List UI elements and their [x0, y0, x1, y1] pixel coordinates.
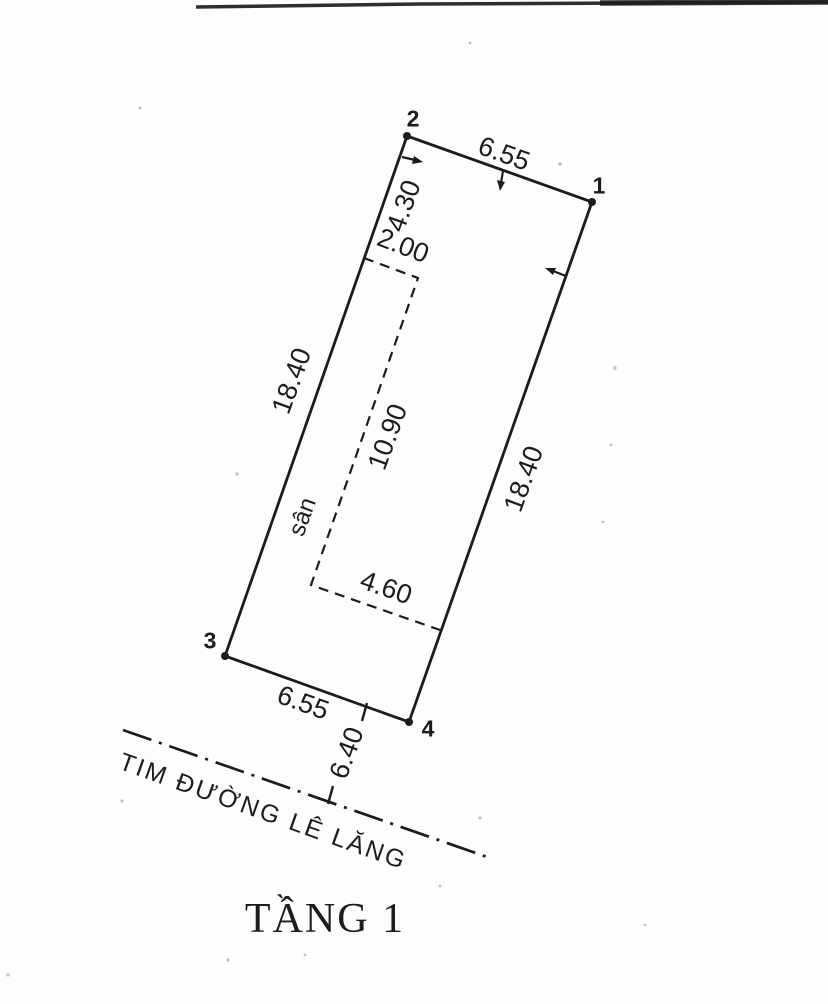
corner-point-1 — [588, 198, 596, 206]
corner-label-1: 1 — [593, 175, 606, 198]
scanned-floor-plan-page: 2 1 3 4 6.55 4.30 2.00 18.40 sân 10.90 1… — [0, 0, 828, 1004]
page-title: TẦNG 1 — [245, 898, 405, 940]
leader-arrow-top-edge — [497, 171, 505, 191]
leader-arrow-left-edge — [402, 156, 423, 164]
page-edge-artifact-thick — [600, 2, 828, 3]
corner-point-3 — [221, 652, 229, 660]
plan-canvas — [0, 0, 828, 1004]
corner-label-3: 3 — [204, 630, 217, 653]
leader-arrow-right-edge — [545, 268, 566, 276]
corner-label-2: 2 — [407, 108, 420, 131]
corner-point-2 — [403, 132, 411, 140]
corner-point-4 — [405, 718, 413, 726]
corner-label-4: 4 — [422, 718, 435, 741]
